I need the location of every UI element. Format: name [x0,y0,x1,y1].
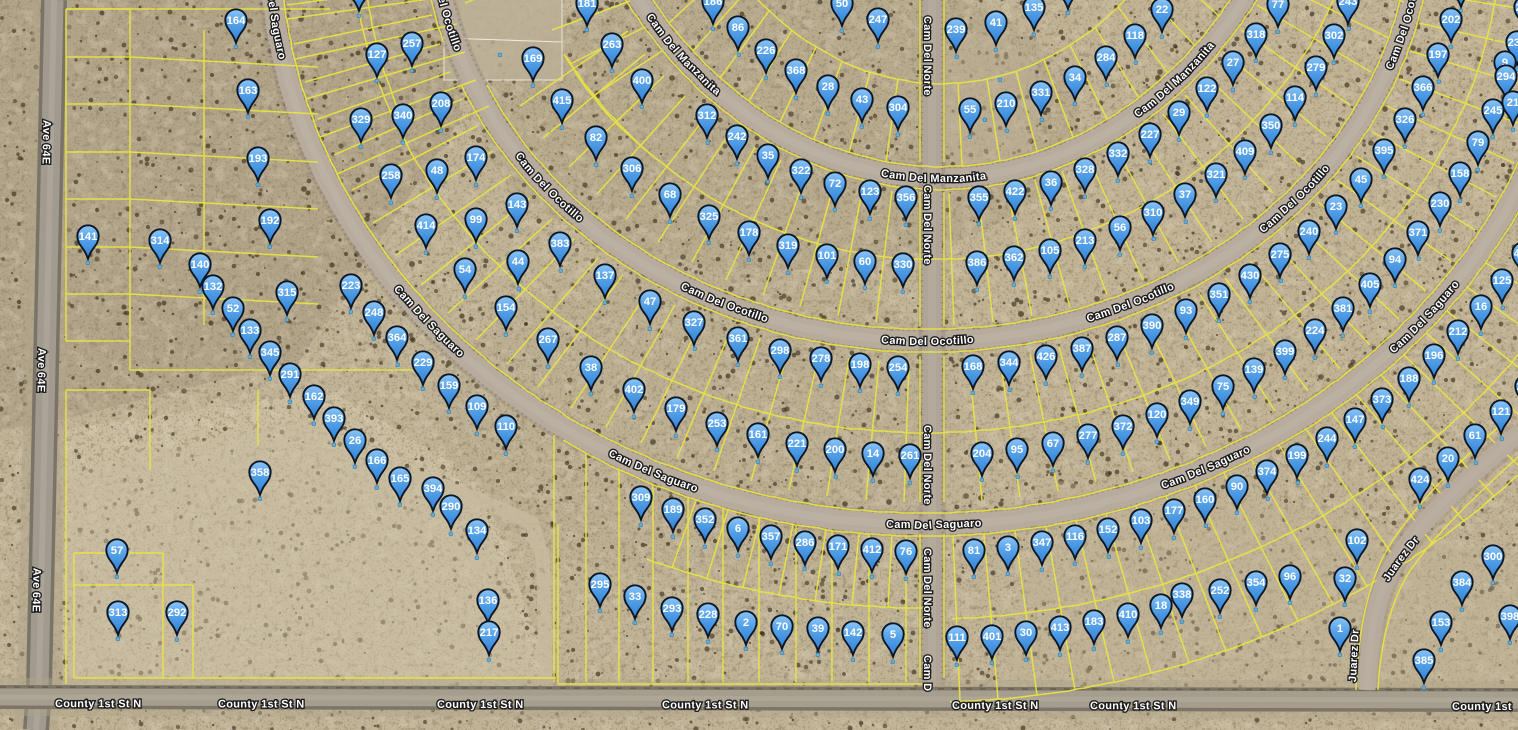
svg-text:103: 103 [1132,515,1151,527]
svg-text:174: 174 [467,152,486,164]
svg-text:208: 208 [432,98,451,110]
svg-text:54: 54 [459,264,472,276]
svg-text:329: 329 [352,114,371,126]
svg-text:355: 355 [970,192,989,204]
svg-text:158: 158 [1451,168,1470,180]
svg-text:204: 204 [973,448,992,460]
svg-text:351: 351 [1210,289,1229,301]
svg-text:48: 48 [431,165,443,177]
svg-text:245: 245 [1484,105,1503,117]
svg-text:36: 36 [1045,177,1057,189]
svg-text:322: 322 [792,165,811,177]
svg-text:111: 111 [948,632,965,644]
svg-text:133: 133 [241,325,260,337]
svg-text:41: 41 [990,17,1002,29]
svg-text:137: 137 [596,270,615,282]
svg-text:189: 189 [664,504,683,516]
svg-text:312: 312 [698,110,717,122]
svg-text:57: 57 [111,545,123,557]
svg-text:228: 228 [699,609,718,621]
svg-text:County 1st St N: County 1st St N [1090,700,1177,712]
svg-text:331: 331 [1032,87,1051,99]
svg-text:32: 32 [1339,573,1351,585]
svg-text:310: 310 [1144,207,1163,219]
svg-text:199: 199 [1288,450,1307,462]
svg-text:3: 3 [1005,542,1011,554]
svg-text:400: 400 [633,75,652,87]
svg-text:16: 16 [1475,301,1487,313]
svg-text:141: 141 [79,231,98,243]
svg-text:60: 60 [859,256,871,268]
svg-text:99: 99 [470,214,482,226]
svg-text:244: 244 [1318,433,1337,445]
svg-text:171: 171 [829,541,848,553]
svg-text:162: 162 [305,391,324,403]
svg-text:135: 135 [1025,2,1044,14]
svg-text:292: 292 [168,607,187,619]
svg-text:267: 267 [539,334,558,346]
svg-text:77: 77 [1272,0,1284,11]
svg-text:426: 426 [1037,351,1056,363]
svg-text:2: 2 [743,617,749,629]
svg-text:254: 254 [889,362,908,374]
svg-text:414: 414 [417,220,436,232]
svg-text:75: 75 [1217,381,1229,393]
svg-text:County 1st St N: County 1st St N [218,698,305,710]
svg-text:Cam Del Norte: Cam Del Norte [921,185,933,265]
svg-text:21: 21 [1507,97,1518,109]
svg-text:278: 278 [812,353,831,365]
svg-text:County 1st St N: County 1st St N [55,698,142,710]
svg-text:96: 96 [1284,571,1296,583]
svg-text:22: 22 [1156,4,1168,16]
svg-text:430: 430 [1241,270,1260,282]
svg-text:395: 395 [1375,145,1394,157]
svg-text:383: 383 [551,238,570,250]
svg-text:188: 188 [1400,373,1419,385]
svg-text:356: 356 [897,192,916,204]
svg-text:39: 39 [812,623,824,635]
svg-text:294: 294 [1497,71,1516,83]
svg-text:125: 125 [1493,275,1512,287]
svg-text:223: 223 [342,280,361,292]
svg-text:Cam Del Norte: Cam Del Norte [921,425,933,505]
svg-text:327: 327 [685,317,704,329]
svg-text:47: 47 [644,296,656,308]
svg-text:362: 362 [1005,252,1024,264]
svg-text:217: 217 [480,627,499,639]
svg-text:257: 257 [403,38,422,50]
svg-text:101: 101 [818,250,837,262]
svg-text:309: 309 [632,492,651,504]
svg-text:293: 293 [663,603,682,615]
svg-text:192: 192 [261,215,280,227]
svg-text:68: 68 [664,189,676,201]
svg-text:193: 193 [249,153,268,165]
svg-text:202: 202 [1442,14,1461,26]
svg-text:61: 61 [1469,430,1481,442]
svg-text:County 1st St N: County 1st St N [437,699,524,711]
svg-text:52: 52 [227,303,239,315]
svg-text:Cam Del Norte: Cam Del Norte [921,548,933,628]
svg-text:393: 393 [325,413,344,425]
svg-text:354: 354 [1247,577,1266,589]
svg-text:374: 374 [1258,466,1277,478]
svg-text:82: 82 [590,132,602,144]
svg-text:29: 29 [1173,107,1185,119]
svg-text:332: 332 [1109,148,1128,160]
svg-text:105: 105 [1041,245,1060,257]
svg-text:405: 405 [1361,279,1380,291]
svg-text:198: 198 [851,359,870,371]
svg-text:321: 321 [1207,169,1226,181]
svg-text:226: 226 [757,45,776,57]
svg-text:227: 227 [1141,129,1160,141]
svg-text:319: 319 [779,240,798,252]
svg-text:315: 315 [278,287,297,299]
svg-text:240: 240 [1300,226,1319,238]
svg-text:116: 116 [1066,531,1084,543]
svg-text:352: 352 [696,514,715,526]
svg-text:76: 76 [900,546,912,558]
svg-text:387: 387 [1073,343,1092,355]
svg-text:121: 121 [1492,406,1511,418]
svg-text:371: 371 [1409,227,1428,239]
svg-text:398: 398 [1501,611,1518,623]
svg-text:350: 350 [1262,120,1281,132]
svg-text:302: 302 [1325,30,1344,42]
svg-text:364: 364 [388,332,407,344]
svg-text:304: 304 [889,102,908,114]
svg-text:224: 224 [1306,325,1325,337]
svg-text:186: 186 [704,0,723,8]
svg-text:361: 361 [729,333,748,345]
svg-text:373: 373 [1373,394,1392,406]
svg-text:252: 252 [1211,585,1230,597]
svg-text:181: 181 [578,0,597,10]
svg-text:386: 386 [968,257,987,269]
svg-text:422: 422 [1006,186,1025,198]
svg-text:123: 123 [861,186,880,198]
svg-text:325: 325 [700,211,719,223]
svg-text:242: 242 [728,131,747,143]
svg-text:229: 229 [414,357,433,369]
svg-text:239: 239 [947,24,966,36]
svg-text:Cam Del Ocotillo: Cam Del Ocotillo [880,334,973,348]
svg-text:263: 263 [603,39,622,51]
svg-text:409: 409 [1236,146,1255,158]
svg-text:45: 45 [1355,174,1367,186]
svg-text:279: 279 [1307,62,1326,74]
svg-text:122: 122 [1198,83,1217,95]
svg-text:161: 161 [749,429,768,441]
svg-text:154: 154 [497,302,516,314]
svg-text:86: 86 [732,22,744,34]
svg-text:357: 357 [762,531,781,543]
svg-text:67: 67 [1047,438,1059,450]
svg-text:Cam Del Norte: Cam Del Norte [921,16,933,96]
svg-text:163: 163 [239,85,258,97]
svg-text:142: 142 [844,627,863,639]
svg-text:27: 27 [1227,57,1239,69]
svg-text:165: 165 [391,473,410,485]
svg-text:237: 237 [1508,37,1518,49]
svg-text:340: 340 [394,110,413,122]
svg-text:23: 23 [1330,201,1342,213]
svg-text:368: 368 [787,65,806,77]
svg-text:338: 338 [1173,589,1192,601]
svg-text:248: 248 [365,307,384,319]
svg-text:43: 43 [856,94,868,106]
svg-text:6: 6 [735,523,741,535]
svg-text:County 1st St N: County 1st St N [952,700,1039,712]
svg-text:164: 164 [227,15,246,27]
svg-text:114: 114 [1286,92,1305,104]
svg-text:5: 5 [890,629,896,641]
svg-text:385: 385 [1415,655,1434,667]
svg-text:18: 18 [1155,600,1167,612]
svg-text:177: 177 [1165,505,1184,517]
svg-text:110: 110 [497,421,515,433]
svg-text:35: 35 [762,150,774,162]
svg-text:1: 1 [1337,623,1343,635]
svg-text:381: 381 [1334,303,1353,315]
svg-text:72: 72 [829,178,841,190]
svg-text:416: 416 [1514,248,1518,260]
svg-text:306: 306 [623,163,642,175]
svg-text:28: 28 [822,81,834,93]
svg-text:166: 166 [368,455,387,467]
svg-text:50: 50 [836,0,848,10]
svg-text:196: 196 [1425,350,1444,362]
svg-text:139: 139 [1245,364,1264,376]
svg-text:295: 295 [591,579,610,591]
svg-text:168: 168 [964,361,983,373]
svg-text:210: 210 [997,98,1016,110]
svg-text:213: 213 [1076,235,1095,247]
svg-text:102: 102 [1348,535,1367,547]
svg-text:152: 152 [1099,524,1118,536]
svg-text:Ave 64E: Ave 64E [30,568,43,613]
svg-text:120: 120 [1148,409,1167,421]
svg-text:79: 79 [1472,137,1484,149]
svg-text:200: 200 [826,444,845,456]
svg-text:298: 298 [771,345,790,357]
svg-text:118: 118 [1126,30,1144,42]
svg-text:253: 253 [708,418,727,430]
svg-text:136: 136 [479,595,498,607]
svg-text:81: 81 [968,545,980,557]
svg-text:169: 169 [524,53,543,65]
svg-text:347: 347 [1033,537,1052,549]
svg-text:34: 34 [1069,72,1082,84]
svg-text:399: 399 [1276,346,1295,358]
svg-text:290: 290 [442,501,461,513]
svg-text:291: 291 [281,369,300,381]
svg-text:424: 424 [1411,474,1430,486]
svg-text:56: 56 [1114,222,1126,234]
svg-text:93: 93 [1180,305,1192,317]
svg-text:153: 153 [1432,617,1451,629]
svg-text:344: 344 [1000,357,1019,369]
svg-text:230: 230 [1431,198,1450,210]
svg-text:300: 300 [1484,551,1503,563]
svg-text:412: 412 [863,544,882,556]
svg-text:147: 147 [1346,414,1365,426]
svg-text:394: 394 [424,483,443,495]
svg-text:14: 14 [867,448,880,460]
svg-text:318: 318 [1247,29,1266,41]
svg-text:349: 349 [1181,396,1200,408]
svg-text:221: 221 [788,438,807,450]
svg-text:Ave 64E: Ave 64E [39,120,52,165]
svg-text:134: 134 [468,525,487,537]
svg-text:401: 401 [983,631,1002,643]
svg-text:372: 372 [1114,421,1133,433]
svg-text:33: 33 [629,591,641,603]
svg-text:286: 286 [796,537,815,549]
svg-text:143: 143 [508,199,527,211]
svg-text:275: 275 [1271,249,1290,261]
svg-text:277: 277 [1079,430,1098,442]
svg-text:140: 140 [191,259,210,271]
svg-text:37: 37 [1179,189,1191,201]
svg-text:284: 284 [1097,52,1116,64]
svg-text:197: 197 [1429,49,1448,61]
svg-text:95: 95 [1011,444,1023,456]
svg-text:159: 159 [440,380,459,392]
svg-text:330: 330 [894,259,913,271]
svg-text:287: 287 [1108,332,1127,344]
svg-text:314: 314 [151,235,170,247]
svg-text:38: 38 [585,362,597,374]
svg-text:127: 127 [368,49,387,61]
svg-text:358: 358 [251,467,270,479]
svg-text:328: 328 [1076,164,1095,176]
svg-text:183: 183 [1085,616,1104,628]
svg-text:247: 247 [869,14,888,26]
svg-text:345: 345 [261,347,280,359]
svg-text:258: 258 [382,170,401,182]
svg-text:70: 70 [776,621,788,633]
svg-text:413: 413 [1051,622,1070,634]
svg-text:410: 410 [1119,609,1138,621]
svg-text:132: 132 [204,281,223,293]
svg-text:Ave 64E: Ave 64E [34,348,47,393]
svg-text:55: 55 [964,104,976,116]
svg-text:90: 90 [1231,481,1243,493]
svg-text:30: 30 [1020,627,1032,639]
svg-text:212: 212 [1449,326,1468,338]
svg-text:178: 178 [740,227,759,239]
svg-text:390: 390 [1143,320,1162,332]
svg-text:313: 313 [109,607,128,619]
svg-text:366: 366 [1414,82,1433,94]
svg-text:20: 20 [1442,453,1454,465]
svg-text:109: 109 [468,401,487,413]
svg-text:Cam Del Saguaro: Cam Del Saguaro [885,517,982,532]
svg-text:County 1st St N: County 1st St N [662,699,749,711]
svg-text:160: 160 [1196,494,1215,506]
svg-text:384: 384 [1453,577,1472,589]
svg-text:94: 94 [1389,254,1402,266]
svg-text:402: 402 [625,384,644,396]
svg-text:261: 261 [901,450,920,462]
svg-text:26: 26 [349,435,361,447]
svg-text:243: 243 [1339,0,1358,8]
svg-text:415: 415 [553,95,572,107]
svg-text:326: 326 [1396,114,1415,126]
svg-text:44: 44 [512,256,525,268]
svg-text:179: 179 [667,403,686,415]
